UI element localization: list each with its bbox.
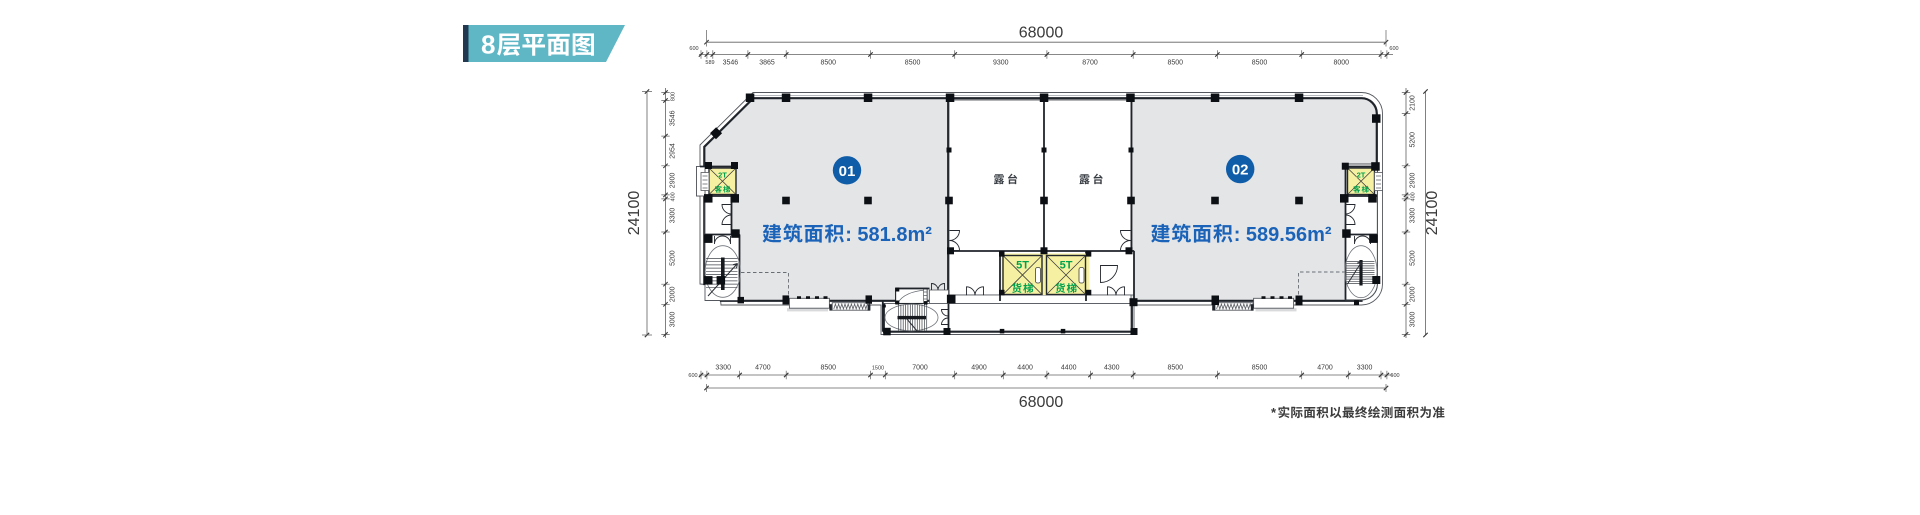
svg-text:4900: 4900 <box>971 365 987 372</box>
svg-text:4400: 4400 <box>1017 365 1033 372</box>
svg-text:600: 600 <box>689 46 698 52</box>
svg-text:3546: 3546 <box>723 60 739 67</box>
svg-text:4700: 4700 <box>755 365 771 372</box>
svg-text:8500: 8500 <box>905 60 921 67</box>
svg-text:600: 600 <box>1390 373 1399 379</box>
svg-text:2000: 2000 <box>670 286 677 302</box>
svg-text:2900: 2900 <box>1410 173 1417 189</box>
svg-text:8000: 8000 <box>1334 60 1350 67</box>
svg-text:4400: 4400 <box>1061 365 1077 372</box>
svg-text:3865: 3865 <box>759 60 775 67</box>
svg-text:3300: 3300 <box>715 365 731 372</box>
svg-text:2100: 2100 <box>1410 95 1417 111</box>
svg-text:24100: 24100 <box>626 191 643 236</box>
svg-text:3546: 3546 <box>670 110 677 126</box>
svg-text:2T: 2T <box>718 171 727 180</box>
svg-text:400: 400 <box>1411 192 1417 201</box>
svg-text:5200: 5200 <box>1410 132 1417 148</box>
svg-text:8500: 8500 <box>1252 365 1268 372</box>
svg-text:3000: 3000 <box>670 312 677 328</box>
svg-text:3300: 3300 <box>670 208 677 224</box>
svg-text:02: 02 <box>1232 162 1249 179</box>
svg-text:8: 8 <box>481 30 495 60</box>
svg-text:: 589.56m²: : 589.56m² <box>1234 224 1332 246</box>
svg-text:3000: 3000 <box>1410 312 1417 328</box>
svg-text:2000: 2000 <box>1410 286 1417 302</box>
svg-text:2900: 2900 <box>670 173 677 189</box>
svg-text:7000: 7000 <box>912 365 928 372</box>
svg-text:3300: 3300 <box>1410 208 1417 224</box>
svg-text:5T: 5T <box>1060 260 1073 272</box>
svg-text:8500: 8500 <box>821 60 837 67</box>
svg-text:800: 800 <box>671 92 677 101</box>
svg-text:8500: 8500 <box>1168 60 1184 67</box>
svg-text:600: 600 <box>688 373 697 379</box>
svg-text:5T: 5T <box>1016 260 1029 272</box>
svg-text:8500: 8500 <box>1168 365 1184 372</box>
svg-text:8500: 8500 <box>821 365 837 372</box>
svg-text:2954: 2954 <box>670 143 677 159</box>
svg-text:4700: 4700 <box>1317 365 1333 372</box>
svg-text:5200: 5200 <box>1410 250 1417 266</box>
svg-text:400: 400 <box>671 192 677 201</box>
svg-text:600: 600 <box>1389 46 1398 52</box>
svg-text:1500: 1500 <box>872 366 884 372</box>
svg-text:9300: 9300 <box>993 60 1009 67</box>
svg-text:68000: 68000 <box>1019 25 1064 42</box>
svg-text:01: 01 <box>839 163 856 180</box>
svg-text:4300: 4300 <box>1104 365 1120 372</box>
svg-text:8700: 8700 <box>1082 60 1098 67</box>
svg-text:24100: 24100 <box>1424 191 1441 236</box>
svg-text:: 581.8m²: : 581.8m² <box>845 224 932 246</box>
svg-text:68000: 68000 <box>1019 394 1064 411</box>
svg-text:3300: 3300 <box>1357 365 1373 372</box>
svg-text:5200: 5200 <box>670 250 677 266</box>
svg-text:2T: 2T <box>1357 171 1366 180</box>
svg-text:8500: 8500 <box>1252 60 1268 67</box>
svg-text:589: 589 <box>705 60 714 66</box>
